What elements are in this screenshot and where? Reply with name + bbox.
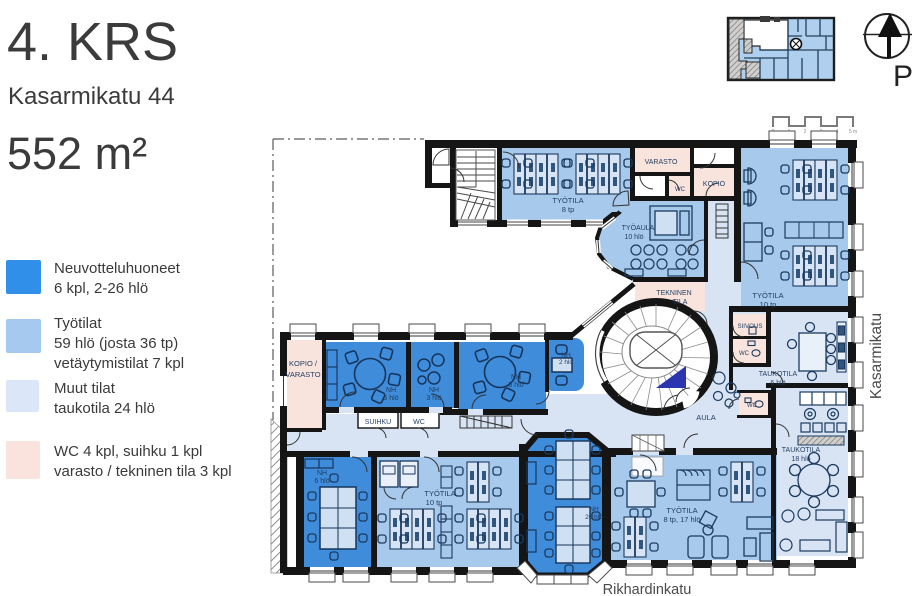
svg-text:59 hlö (josta 36 tp): 59 hlö (josta 36 tp) — [54, 335, 178, 352]
svg-text:Kasarmikatu: Kasarmikatu — [868, 313, 885, 399]
svg-text:taukotila 24 hlö: taukotila 24 hlö — [54, 400, 155, 417]
svg-text:6 kpl, 2-26 hlö: 6 kpl, 2-26 hlö — [54, 280, 148, 297]
svg-text:Työtilat: Työtilat — [54, 315, 102, 332]
svg-text:NH: NH — [429, 387, 439, 394]
svg-text:Neuvotteluhuoneet: Neuvotteluhuoneet — [54, 260, 181, 277]
svg-text:5 m: 5 m — [849, 129, 857, 135]
svg-text:P: P — [893, 60, 913, 93]
svg-text:NH: NH — [317, 470, 327, 477]
svg-text:WC: WC — [739, 351, 750, 357]
svg-text:TAUKOTILA: TAUKOTILA — [782, 447, 821, 454]
svg-text:4. KRS: 4. KRS — [7, 12, 178, 72]
svg-text:VARASTO: VARASTO — [645, 159, 678, 166]
svg-text:WC: WC — [413, 419, 425, 426]
svg-text:KOPIO: KOPIO — [703, 181, 726, 188]
svg-text:26 hlö: 26 hlö — [585, 514, 603, 521]
svg-text:TYÖTILA: TYÖTILA — [752, 291, 783, 300]
svg-text:TYÖTILA: TYÖTILA — [552, 196, 583, 205]
svg-text:8 tp: 8 tp — [562, 205, 575, 214]
svg-text:KOPIO /: KOPIO / — [289, 359, 318, 368]
svg-text:varasto / tekninen tila 3 kpl: varasto / tekninen tila 3 kpl — [54, 463, 232, 480]
svg-text:Rikhardinkatu: Rikhardinkatu — [603, 582, 692, 596]
svg-text:SIIVOUS: SIIVOUS — [737, 323, 762, 330]
svg-text:TYÖTILA: TYÖTILA — [424, 489, 455, 498]
svg-text:8 tp, 17 hlö: 8 tp, 17 hlö — [663, 515, 700, 524]
svg-text:TYÖAULA: TYÖAULA — [622, 224, 655, 232]
svg-text:TEKNINEN: TEKNINEN — [656, 290, 691, 297]
svg-text:10 tp: 10 tp — [426, 498, 443, 507]
svg-text:18 hlö: 18 hlö — [791, 456, 810, 463]
svg-text:Kasarmikatu 44: Kasarmikatu 44 — [8, 83, 175, 110]
svg-text:6 hlö: 6 hlö — [770, 380, 785, 387]
svg-text:6 hlö: 6 hlö — [314, 478, 329, 485]
svg-text:552 m²: 552 m² — [7, 128, 147, 179]
svg-text:TYÖTILA: TYÖTILA — [666, 506, 697, 515]
svg-text:WC: WC — [747, 403, 758, 409]
svg-text:NH: NH — [386, 387, 396, 394]
svg-text:WC 4 kpl, suihku 1 kpl: WC 4 kpl, suihku 1 kpl — [54, 443, 202, 460]
svg-text:NH: NH — [589, 506, 599, 513]
svg-text:VARASTO: VARASTO — [285, 370, 320, 379]
svg-text:10 hlö: 10 hlö — [624, 234, 643, 241]
svg-text:5 hlö: 5 hlö — [383, 395, 398, 402]
svg-text:WC: WC — [675, 187, 686, 193]
svg-text:SUIHKU: SUIHKU — [365, 419, 391, 426]
svg-text:Muut tilat: Muut tilat — [54, 380, 116, 397]
svg-text:10 tp: 10 tp — [760, 300, 777, 309]
svg-text:NH: NH — [561, 352, 571, 359]
svg-text:3 hlö: 3 hlö — [426, 395, 441, 402]
svg-text:TILA: TILA — [673, 299, 688, 306]
svg-text:vetäytymistilat 7 kpl: vetäytymistilat 7 kpl — [54, 355, 184, 372]
svg-text:AULA: AULA — [696, 413, 716, 422]
svg-text:NH: NH — [511, 374, 521, 381]
svg-text:2: 2 — [804, 129, 807, 135]
svg-text:TAUKOTILA: TAUKOTILA — [759, 371, 798, 378]
svg-text:5 hlö: 5 hlö — [508, 382, 523, 389]
svg-text:2 hlö: 2 hlö — [559, 359, 573, 366]
